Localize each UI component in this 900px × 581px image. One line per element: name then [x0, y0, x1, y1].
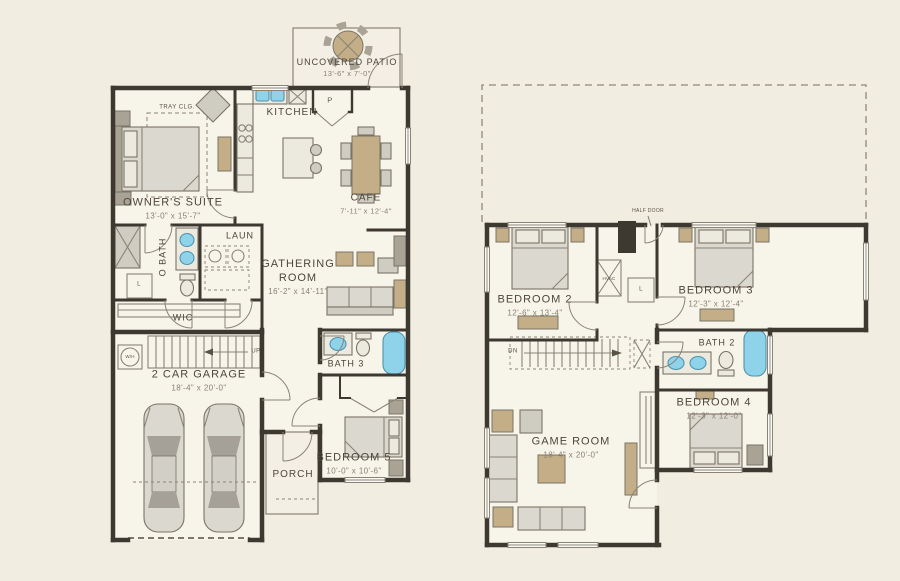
sink-icon [180, 234, 194, 247]
label-wic: WIC [173, 312, 194, 323]
wic-name: WIC [173, 312, 194, 323]
armchair-icon [492, 410, 513, 432]
window [768, 414, 773, 456]
label-bath2: BATH 2 [699, 337, 736, 348]
chase-block [618, 221, 636, 253]
bath3-name: BATH 3 [328, 358, 365, 369]
label-owners-bath: O BATH [157, 238, 168, 277]
kitchen-name: KITCHEN [267, 107, 318, 120]
garage-name: 2 CAR GARAGE [152, 369, 247, 383]
label-linen-sf: L [639, 286, 643, 294]
gathering-name: GATHERING ROOM [257, 258, 339, 286]
owners-suite-name: OWNER'S SUITE [123, 197, 223, 211]
label-garage: 2 CAR GARAGE 18'-4" x 20'-0" [152, 369, 247, 394]
dresser-icon [218, 137, 231, 171]
bed-icon [690, 414, 742, 468]
bedroom2-name: BEDROOM 2 [497, 294, 572, 308]
label-laundry: LAUN [226, 230, 254, 241]
window [345, 478, 385, 483]
sink-icon [690, 357, 706, 370]
garage-dims: 18'-4" x 20'-0" [152, 383, 247, 393]
label-porch: PORCH [272, 469, 313, 482]
label-uncovered-patio: UNCOVERED PATIO 13'-6" x 7'-0" [297, 57, 398, 79]
label-game-room: GAME ROOM 18'-4" x 20'-0" [532, 436, 611, 461]
roof-outline [482, 85, 866, 222]
window [692, 223, 756, 228]
toilet-icon [718, 352, 734, 377]
cafe-name: CAFE [340, 193, 392, 206]
nightstand-icon [496, 228, 509, 242]
window [485, 428, 490, 468]
bedroom4-dims: 12'-3" x 12'-0" [676, 411, 751, 421]
patio-dims: 13'-6" x 7'-0" [297, 69, 398, 78]
bedroom5-name: BEDROOM 5 [316, 452, 391, 466]
bedroom5-dims: 10'-0" x 10'-6" [316, 466, 391, 476]
floorplan-drawing [0, 0, 900, 581]
half-door-leader [648, 216, 651, 226]
floorplan-canvas: UNCOVERED PATIO 13'-6" x 7'-0" KITCHEN P… [0, 0, 900, 581]
bench-icon [700, 309, 734, 321]
porch-name: PORCH [272, 469, 313, 482]
window [252, 86, 288, 91]
game-room-name: GAME ROOM [532, 436, 611, 450]
shower-icon [115, 226, 140, 268]
gathering-dims: 16'-2" x 14'-11" [257, 286, 339, 296]
window [864, 243, 869, 300]
bath2-name: BATH 2 [699, 337, 736, 348]
side-table-icon [493, 507, 513, 527]
armchair-icon [357, 252, 374, 266]
bedroom2-dims: 12'-6" x 13'-4" [497, 308, 572, 318]
label-stairs-down: DN [508, 348, 518, 356]
label-bedroom5: BEDROOM 5 10'-0" x 10'-6" [316, 452, 391, 477]
label-bath3: BATH 3 [328, 358, 365, 369]
nightstand-icon [756, 228, 769, 242]
bedroom4-name: BEDROOM 4 [676, 397, 751, 411]
label-cafe: CAFE 7'-11" x 12'-4" [340, 193, 392, 216]
label-water-heater: W/H [125, 354, 134, 360]
cafe-dims: 7'-11" x 12'-4" [340, 206, 392, 215]
sink-icon [668, 357, 684, 370]
window [768, 336, 773, 374]
armchair-icon [520, 410, 542, 433]
label-stairs-up: UP [251, 348, 260, 356]
label-half-door: HALF DOOR [632, 208, 664, 214]
label-linen-ff: L [137, 281, 141, 289]
label-owners-suite: OWNER'S SUITE 13'-0" x 15'-7" [123, 197, 223, 222]
car-icon [204, 404, 244, 532]
label-bedroom2: BEDROOM 2 12'-6" x 13'-4" [497, 294, 572, 319]
bedroom3-name: BEDROOM 3 [678, 285, 753, 299]
window [406, 128, 411, 164]
toilet-icon [180, 274, 195, 296]
bathtub-icon [744, 330, 766, 376]
window [508, 223, 566, 228]
kitchen-sink-icon [256, 90, 269, 101]
label-tray-ceiling: TRAY CLG. [159, 104, 195, 112]
bed-icon [115, 125, 199, 193]
kitchen-counter [237, 104, 253, 192]
bedroom3-dims: 12'-3" x 12'-4" [678, 299, 753, 309]
patio-name: UNCOVERED PATIO [297, 57, 398, 68]
label-bedroom3: BEDROOM 3 12'-3" x 12'-4" [678, 285, 753, 310]
game-room-dims: 18'-4" x 20'-0" [532, 450, 611, 460]
label-bedroom4: BEDROOM 4 12'-3" x 12'-0" [676, 397, 751, 422]
label-gathering-room: GATHERING ROOM 16'-2" x 14'-11" [257, 258, 339, 297]
nightstand-icon [571, 228, 584, 242]
label-pantry: P [327, 95, 333, 104]
media-console-icon [394, 236, 406, 266]
nightstand-icon [114, 111, 130, 126]
sink-icon [180, 252, 194, 265]
console-icon [625, 443, 637, 495]
cabinet-icon [394, 280, 406, 308]
window [558, 543, 598, 548]
range-icon [289, 89, 306, 104]
owners-suite-dims: 13'-0" x 15'-7" [123, 211, 223, 221]
nightstand-icon [679, 228, 692, 242]
owners-bath-name: O BATH [157, 238, 168, 277]
label-hvac: HVAC [603, 276, 616, 282]
toilet-icon [356, 333, 371, 356]
window-seat-icon [747, 445, 763, 465]
bathtub-icon [383, 332, 405, 374]
window [485, 478, 490, 518]
window [508, 543, 546, 548]
laundry-name: LAUN [226, 230, 254, 241]
window [694, 468, 742, 473]
bed-icon [695, 227, 753, 287]
window [485, 247, 490, 292]
label-kitchen: KITCHEN [267, 107, 318, 120]
bed-icon [512, 227, 568, 289]
car-icon [144, 404, 184, 532]
